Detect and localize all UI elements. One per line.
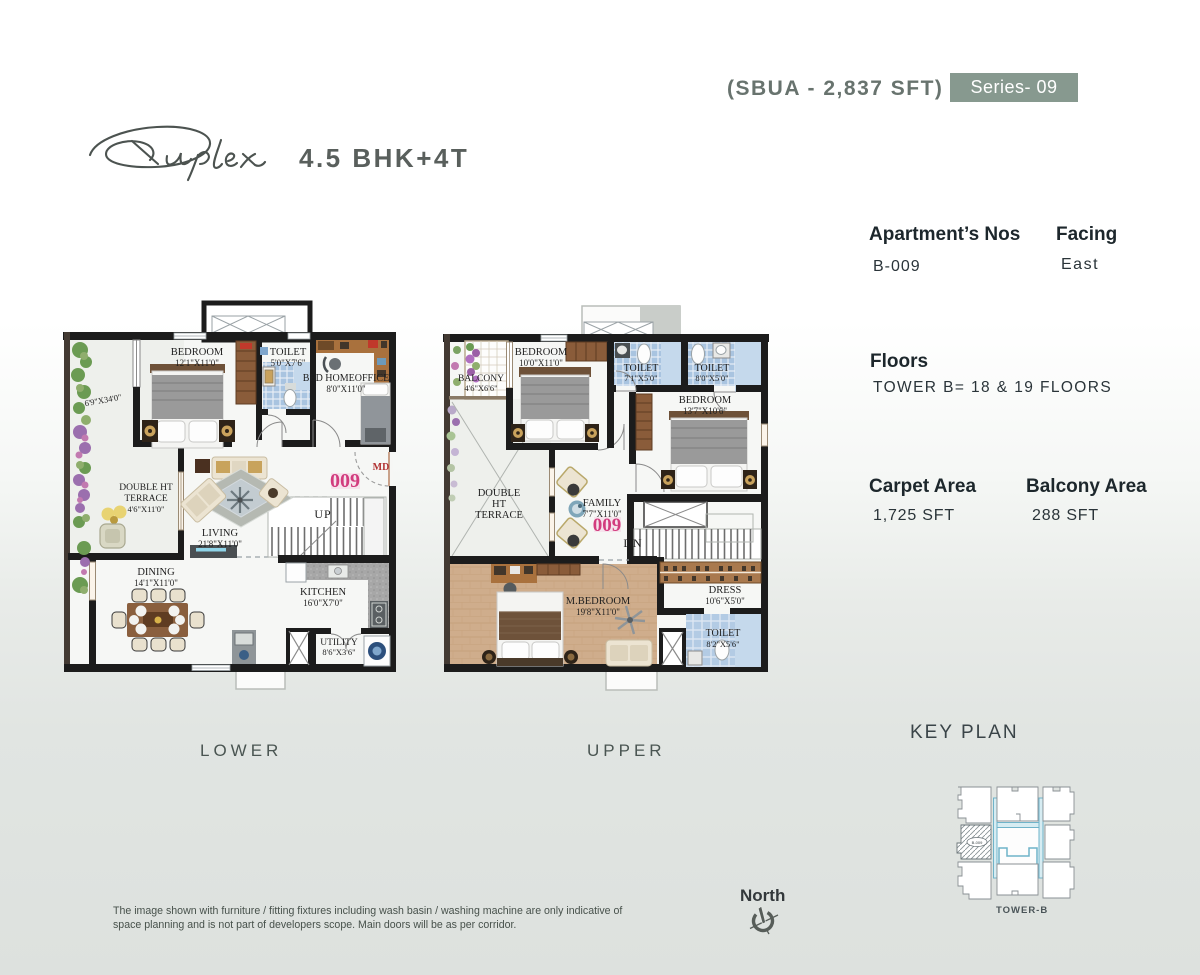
svg-text:DN: DN xyxy=(623,536,642,550)
svg-text:009: 009 xyxy=(330,470,360,492)
svg-text:4'6"X6'6": 4'6"X6'6" xyxy=(464,383,497,393)
svg-text:LIVING: LIVING xyxy=(202,528,239,539)
svg-text:8'6"X3'6": 8'6"X3'6" xyxy=(322,647,355,657)
svg-text:KITCHEN: KITCHEN xyxy=(300,587,346,598)
svg-text:10'6"X5'0": 10'6"X5'0" xyxy=(705,596,745,606)
svg-text:DOUBLE HT: DOUBLE HT xyxy=(119,483,173,493)
svg-text:12'1"X11'0": 12'1"X11'0" xyxy=(175,358,219,368)
svg-text:10'0"X11'0": 10'0"X11'0" xyxy=(519,358,563,368)
svg-text:16'0"X7'0": 16'0"X7'0" xyxy=(303,598,343,608)
svg-text:M.BEDROOM: M.BEDROOM xyxy=(566,596,631,607)
svg-text:BEDROOM: BEDROOM xyxy=(171,347,224,358)
svg-text:DINING: DINING xyxy=(137,567,175,578)
svg-text:B-009: B-009 xyxy=(972,840,983,845)
svg-text:4'6"X11'0": 4'6"X11'0" xyxy=(127,504,164,514)
svg-text:TERRACE: TERRACE xyxy=(124,494,167,504)
svg-text:MD: MD xyxy=(373,462,390,473)
svg-text:13'7"X10'6": 13'7"X10'6" xyxy=(683,406,727,416)
svg-text:009: 009 xyxy=(593,515,622,536)
svg-text:TOILET: TOILET xyxy=(270,347,307,358)
svg-text:8'2"X5'6": 8'2"X5'6" xyxy=(706,639,739,649)
svg-text:19'8"X11'0": 19'8"X11'0" xyxy=(576,607,620,617)
svg-text:DOUBLE: DOUBLE xyxy=(478,488,521,499)
svg-text:8'0"X11'0": 8'0"X11'0" xyxy=(326,384,366,394)
svg-text:FAMILY: FAMILY xyxy=(583,498,622,509)
svg-text:BEDROOM: BEDROOM xyxy=(515,347,568,358)
svg-text:DRESS: DRESS xyxy=(709,585,742,596)
svg-text:8'0"X5'0": 8'0"X5'0" xyxy=(695,373,728,383)
svg-text:BED HOMEOFFICE: BED HOMEOFFICE xyxy=(303,373,389,384)
svg-text:21'8"X11'0": 21'8"X11'0" xyxy=(198,539,242,549)
svg-text:BEDROOM: BEDROOM xyxy=(679,395,732,406)
svg-text:HT: HT xyxy=(492,499,507,510)
svg-text:5'0"X7'6": 5'0"X7'6" xyxy=(270,358,305,368)
svg-text:14'1"X11'0": 14'1"X11'0" xyxy=(134,578,178,588)
svg-text:UP: UP xyxy=(314,507,331,521)
svg-text:TERRACE: TERRACE xyxy=(475,510,523,521)
svg-text:7'1"X5'0": 7'1"X5'0" xyxy=(624,373,657,383)
svg-text:TOILET: TOILET xyxy=(706,628,741,639)
